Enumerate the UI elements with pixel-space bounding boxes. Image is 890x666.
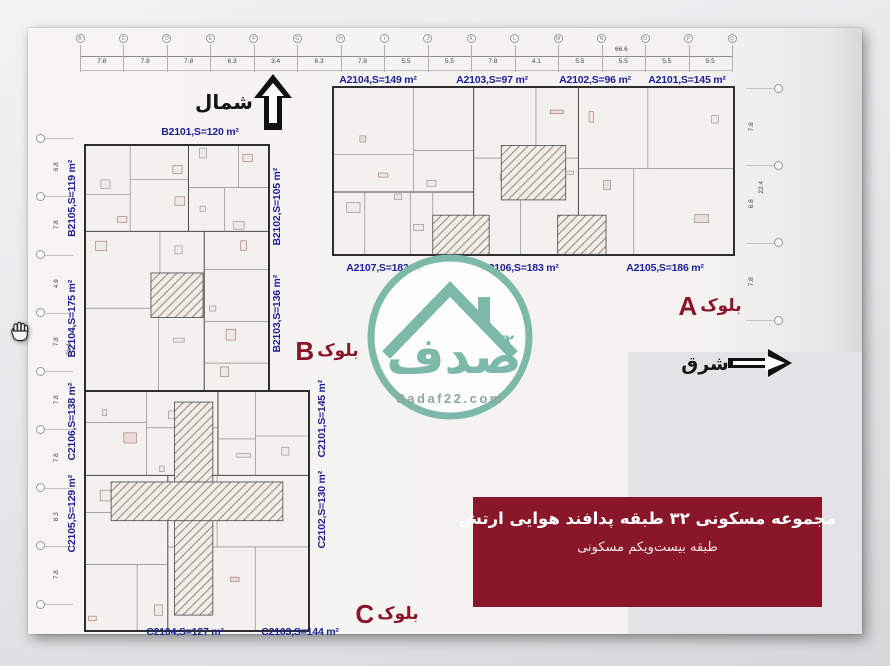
unit-label-c2104: C2104,S=127 m² <box>146 626 223 638</box>
block-a-floorplan <box>332 86 735 256</box>
block-a-letter: A <box>678 293 697 319</box>
ruler-dimension: 7.8 <box>53 429 60 487</box>
grid-bubble: Q <box>728 34 737 43</box>
ruler-dimension: 7.8 <box>748 243 755 320</box>
unit-label-c2105: C2105,S=129 m² <box>66 475 78 552</box>
grid-bubble: O <box>641 34 650 43</box>
unit-label-b2103: B2103,S=136 m² <box>271 275 283 352</box>
ruler-dimension: 6.3 <box>297 58 340 65</box>
unit-label-a2101: A2101,S=145 m² <box>648 74 725 86</box>
grid-bubble <box>36 134 45 143</box>
ruler-dimension: 7.8 <box>53 196 60 254</box>
grid-bubble <box>774 84 783 93</box>
ruler-dimension: 4.9 <box>53 255 60 313</box>
unit-label-a2103: A2103,S=97 m² <box>456 74 528 86</box>
ruler-total: 66.6 <box>615 46 628 53</box>
grid-bubble: C <box>119 34 128 43</box>
grid-bubble: H <box>336 34 345 43</box>
ruler-dimension: 6.8 <box>53 138 60 196</box>
ruler-dimension: 5.5 <box>558 58 601 65</box>
grid-bubble: D <box>162 34 171 43</box>
grid-bubble <box>36 192 45 201</box>
logo-number: ۲۲ <box>496 331 514 349</box>
grid-bubble <box>774 161 783 170</box>
block-c-label: بلوک C <box>355 601 418 627</box>
grid-bubble <box>36 308 45 317</box>
unit-label-b2102: B2102,S=105 m² <box>271 168 283 245</box>
grid-bubble <box>774 238 783 247</box>
pan-hand-cursor-icon <box>6 318 34 346</box>
grid-bubble <box>36 250 45 259</box>
ruler-dimension: 7.8 <box>748 88 755 165</box>
floor-subtitle: طبقه بیست‌ویکم مسکونی <box>577 540 718 555</box>
ruler-dimension: 7.8 <box>53 371 60 429</box>
grid-bubble: B <box>76 34 85 43</box>
ruler-dimension: 3.4 <box>254 58 297 65</box>
ruler-total: 22.4 <box>758 181 765 194</box>
ruler-dimension: 7.8 <box>53 313 60 371</box>
ruler-dimension: 6.8 <box>748 165 755 242</box>
north-label: شمال <box>195 90 253 114</box>
project-title: مجموعه مسکونی ۳۲ طبقه پدافند هوایی ارتش <box>459 509 836 528</box>
sadaf-logo: صدف ۲۲ Sadaf22.com <box>364 251 536 423</box>
block-b-word: بلوک <box>317 341 358 361</box>
unit-label-a2105: A2105,S=186 m² <box>626 262 703 274</box>
block-b-floorplan <box>84 144 270 392</box>
logo-site-text: Sadaf22.com <box>396 391 504 406</box>
block-c-letter: C <box>355 601 374 627</box>
unit-label-b2101: B2101,S=120 m² <box>161 126 238 138</box>
ruler-dimension: 6.3 <box>210 58 253 65</box>
grid-bubble: N <box>597 34 606 43</box>
block-a-label: بلوک A <box>678 293 741 319</box>
ruler-dimension: 7.8 <box>123 58 166 65</box>
ruler-dimension: 7.8 <box>167 58 210 65</box>
grid-bubble: M <box>554 34 563 43</box>
grid-bubble: K <box>467 34 476 43</box>
grid-bubble: G <box>293 34 302 43</box>
north-arrow-icon <box>252 72 294 134</box>
right-dimension-ruler: 7.86.87.822.4 <box>742 88 786 320</box>
unit-label-c2102: C2102,S=130 m² <box>316 471 328 548</box>
grid-bubble <box>36 425 45 434</box>
ruler-dimension: 7.8 <box>53 546 60 604</box>
ruler-dimension: 5.5 <box>384 58 427 65</box>
block-a-word: بلوک <box>700 296 741 316</box>
grid-bubble: E <box>206 34 215 43</box>
unit-label-c2106: C2106,S=138 m² <box>66 383 78 460</box>
unit-label-c2103: C2103,S=144 m² <box>261 626 338 638</box>
east-arrow-icon <box>726 346 794 380</box>
grid-bubble <box>774 316 783 325</box>
top-dimension-ruler: BCDEFGHIJKLMNOPQ7.87.87.86.33.46.37.85.5… <box>80 34 732 78</box>
ruler-dimension: 7.8 <box>80 58 123 65</box>
grid-bubble: I <box>380 34 389 43</box>
block-b-letter: B <box>295 338 314 364</box>
ruler-dimension: 7.8 <box>471 58 514 65</box>
ruler-tick <box>732 45 733 72</box>
block-b-label: بلوک B <box>295 338 358 364</box>
ruler-dimension: 8.3 <box>53 488 60 546</box>
grid-bubble <box>36 367 45 376</box>
block-c-floorplan <box>84 390 310 632</box>
unit-label-b2104: B2104,S=175 m² <box>66 280 78 357</box>
unit-label-a2102: A2102,S=96 m² <box>559 74 631 86</box>
ruler-line <box>80 70 732 71</box>
grid-bubble <box>36 483 45 492</box>
ruler-dimension: 5.5 <box>428 58 471 65</box>
unit-label-a2104: A2104,S=149 m² <box>339 74 416 86</box>
block-c-word: بلوک <box>377 604 418 624</box>
project-banner: مجموعه مسکونی ۳۲ طبقه پدافند هوایی ارتش … <box>473 497 822 607</box>
unit-label-b2105: B2105,S=119 m² <box>66 160 78 237</box>
east-label: شرق <box>681 353 729 375</box>
grid-bubble <box>36 541 45 550</box>
viewer-stage: BCDEFGHIJKLMNOPQ7.87.87.86.33.46.37.85.5… <box>0 0 890 666</box>
ruler-line <box>80 56 732 57</box>
grid-bubble: F <box>249 34 258 43</box>
grid-bubble: L <box>510 34 519 43</box>
ruler-dimension: 4.1 <box>515 58 558 65</box>
unit-label-c2101: C2101,S=145 m² <box>316 380 328 457</box>
grid-bubble: J <box>423 34 432 43</box>
ruler-dimension: 5.5 <box>645 58 688 65</box>
grid-bubble: P <box>684 34 693 43</box>
ruler-dimension: 5.5 <box>689 58 732 65</box>
grid-bubble <box>36 600 45 609</box>
ruler-dimension: 5.5 <box>602 58 645 65</box>
ruler-dimension: 7.8 <box>341 58 384 65</box>
